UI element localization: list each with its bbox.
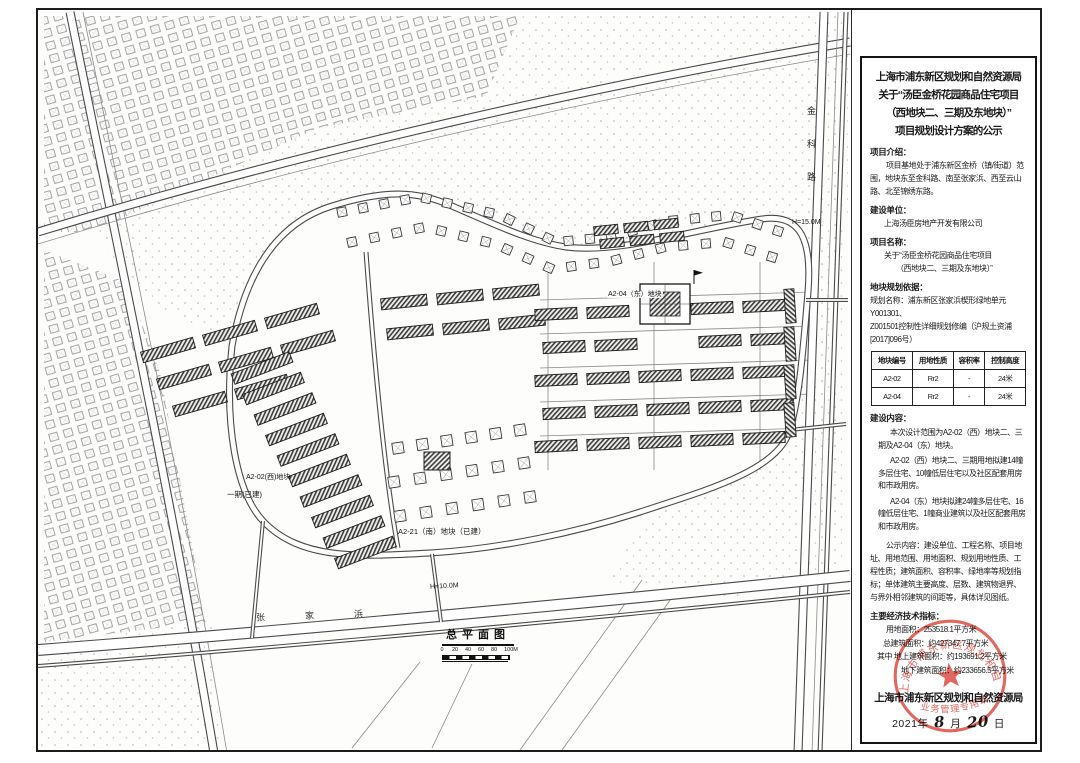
section-builder-label: 建设单位： [870, 204, 1027, 216]
table-cell: - [953, 388, 984, 406]
parcel-label-phase-one: 一期(已建) [227, 491, 262, 499]
parcel-table-header-row: 地块编号 用地性质 容积率 控制高度 [871, 352, 1025, 370]
section-intro-label: 项目介绍： [870, 146, 1027, 158]
table-header-cell: 用地性质 [912, 352, 953, 370]
scale-bar-graphic [442, 655, 510, 660]
section-project-label: 项目名称： [870, 236, 1027, 248]
table-cell: A2-02 [871, 370, 912, 388]
metrics-list: 用地面积：253518.1平方米 总建筑面积：约427347.7平方米 其中 地… [870, 623, 1027, 677]
table-cell: 24米 [985, 388, 1026, 406]
content-paragraph: A2-04（东）地块拟建24幢多层住宅、16幢低层住宅、1幢商业建筑以及社区配套… [878, 496, 1027, 534]
plan-title: 总平面图 [442, 626, 514, 646]
notice-title-line: 项目规划设计方案的公示 [870, 122, 1027, 140]
panel-content: 上海市浦东新区规划和自然资源局 关于“汤臣金桥花园商品住宅项目 （西地块二、三期… [862, 58, 1035, 731]
metric-line: 地下建筑面积：约233656.5平方米 [870, 664, 1027, 678]
scale-tick: 60 [478, 647, 484, 653]
table-header-cell: 地块编号 [871, 352, 912, 370]
parcel-table: 地块编号 用地性质 容积率 控制高度 A2-02 Rr2 - 24米 A2-04… [871, 351, 1026, 406]
project-name-line: 关于“汤臣金桥花园商品住宅项目 [870, 249, 1027, 262]
notice-title: 上海市浦东新区规划和自然资源局 关于“汤臣金桥花园商品住宅项目 （西地块二、三期… [870, 68, 1027, 140]
date-year: 2021年 [892, 718, 928, 730]
table-cell: Rr2 [912, 370, 953, 388]
issuing-authority-signature: 上海市浦东新区规划和自然资源局 [870, 690, 1027, 705]
intro-text: 项目基地处于浦东新区金桥（镇/街道）范围，地块东至金科路、南至张家浜、西至云山路… [870, 159, 1027, 198]
road-label-jinke: 金科路 [806, 106, 815, 205]
table-cell: A2-04 [871, 388, 912, 406]
scale-tick: 20 [452, 647, 458, 653]
parcel-label-a2-02: A2-02(西)地块 [246, 474, 290, 481]
scale-tick: 100M [504, 647, 518, 653]
scale-bar: 0 20 40 60 80 100M [442, 647, 532, 662]
date-month-handwritten: 8 [933, 713, 945, 732]
scale-tick: 0 [440, 647, 443, 653]
date-day-handwritten: 20 [966, 712, 989, 732]
notice-title-line: 关于“汤臣金桥花园商品住宅项目 [870, 86, 1027, 104]
issue-date: 2021年 8 月 20 日 [870, 713, 1027, 731]
scale-bar-baseline [442, 661, 508, 662]
metric-line: 其中 地上建筑面积：约193691.2平方米 [870, 650, 1027, 664]
date-month-label: 月 [950, 718, 961, 730]
public-notice-text: 公示内容：建设单位、工程名称、项目地址、用地范围、用地面积、规划用地性质、工程性… [870, 539, 1027, 604]
table-cell: 24米 [985, 370, 1026, 388]
height-limit-label-east: H=15.0M [792, 219, 821, 226]
basis-line: 规划名称：浦东新区张家浜楔形绿地单元Y001301、 [870, 294, 1027, 320]
table-cell: Rr2 [912, 388, 953, 406]
scale-tick: 80 [491, 647, 497, 653]
content-paragraph: 本次设计范围为A2-02（西）地块二、三期及A2-04（东）地块。 [878, 427, 1027, 452]
table-cell: - [953, 370, 984, 388]
site-plan-map: A2-02(西)地块 一期(已建) A2-21（南）地块（已建） A2-04（东… [38, 10, 852, 750]
notice-panel: 上海市浦东新区规划和自然资源局 关于“汤臣金桥花园商品住宅项目 （西地块二、三期… [860, 56, 1037, 744]
project-name-line: （西地块二、三期及东地块）” [870, 262, 1027, 275]
height-limit-label-south: H=10.0M [430, 582, 459, 590]
basis-line: Z001501控制性详细规划修编（沪规土资浦[2017]096号） [870, 320, 1027, 346]
metric-line: 总建筑面积：约427347.7平方米 [870, 637, 1027, 651]
table-header-cell: 控制高度 [985, 352, 1026, 370]
notice-title-line: 上海市浦东新区规划和自然资源局 [870, 68, 1027, 86]
section-metrics-label: 主要经济技术指标： [870, 610, 1027, 622]
parcel-label-a2-04: A2-04（东）地块 [607, 291, 663, 298]
table-row: A2-02 Rr2 - 24米 [871, 370, 1025, 388]
scale-tick: 40 [465, 647, 471, 653]
notice-sheet: A2-02(西)地块 一期(已建) A2-21（南）地块（已建） A2-04（东… [0, 0, 1080, 763]
content-paragraph: A2-02（西）地块二、三期用地拟建14幢多层住宅、10幢低层住宅以及社区配套用… [878, 455, 1027, 493]
metric-line: 用地面积：253518.1平方米 [870, 623, 1027, 637]
parcel-label-a2-21: A2-21（南）地块（已建） [398, 528, 486, 536]
table-header-cell: 容积率 [953, 352, 984, 370]
section-content-label: 建设内容： [870, 412, 1027, 424]
date-day-label: 日 [994, 718, 1005, 730]
scale-ticks: 0 20 40 60 80 100M [442, 647, 532, 654]
section-basis-label: 地块规划依据： [870, 281, 1027, 293]
builder-name: 上海汤臣房地产开发有限公司 [870, 217, 1027, 230]
table-row: A2-04 Rr2 - 24米 [871, 388, 1025, 406]
notice-title-line: （西地块二、三期及东地块）” [870, 104, 1027, 122]
